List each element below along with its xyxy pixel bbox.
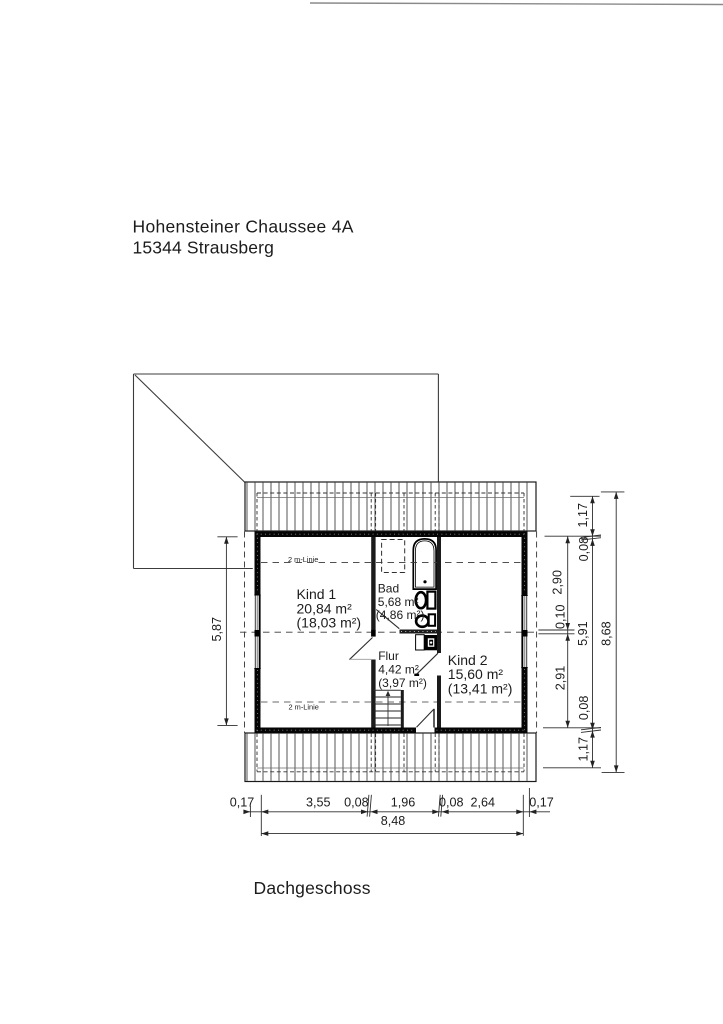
svg-text:2,90: 2,90: [551, 570, 565, 595]
svg-text:0,17: 0,17: [230, 796, 255, 810]
svg-text:Flur: Flur: [378, 649, 399, 663]
svg-text:(13,41 m²): (13,41 m²): [448, 681, 513, 697]
svg-text:15344 Strausberg: 15344 Strausberg: [133, 238, 275, 258]
svg-text:5,91: 5,91: [576, 621, 590, 646]
svg-text:5,68 m²: 5,68 m²: [378, 595, 419, 609]
svg-text:8,48: 8,48: [381, 814, 406, 828]
svg-text:0,17: 0,17: [529, 796, 554, 810]
svg-text:3,55: 3,55: [306, 796, 331, 810]
svg-text:8,68: 8,68: [599, 621, 613, 646]
svg-text:(4,86 m²): (4,86 m²): [376, 608, 425, 622]
svg-text:0,08: 0,08: [439, 796, 464, 810]
svg-text:Hohensteiner Chaussee 4A: Hohensteiner Chaussee 4A: [133, 217, 354, 237]
svg-text:0,08: 0,08: [344, 796, 369, 810]
svg-text:2,91: 2,91: [553, 666, 567, 691]
svg-text:2 m-Linie: 2 m-Linie: [289, 703, 319, 712]
svg-text:0,08: 0,08: [577, 696, 591, 721]
svg-text:5,87: 5,87: [210, 617, 224, 642]
svg-text:Bad: Bad: [378, 581, 399, 595]
svg-text:(3,97 m²): (3,97 m²): [378, 676, 427, 690]
svg-text:1,17: 1,17: [576, 503, 590, 528]
svg-text:Dachgeschoss: Dachgeschoss: [254, 878, 371, 898]
svg-text:(18,03 m²): (18,03 m²): [297, 615, 362, 631]
svg-text:1,96: 1,96: [391, 796, 416, 810]
svg-text:2,64: 2,64: [470, 796, 495, 810]
svg-text:4,42 m²: 4,42 m²: [378, 663, 419, 677]
svg-text:0,10: 0,10: [553, 604, 567, 629]
svg-text:1,17: 1,17: [577, 737, 591, 762]
svg-text:0,08: 0,08: [577, 537, 591, 562]
svg-text:2 m-Linie: 2 m-Linie: [288, 555, 318, 564]
